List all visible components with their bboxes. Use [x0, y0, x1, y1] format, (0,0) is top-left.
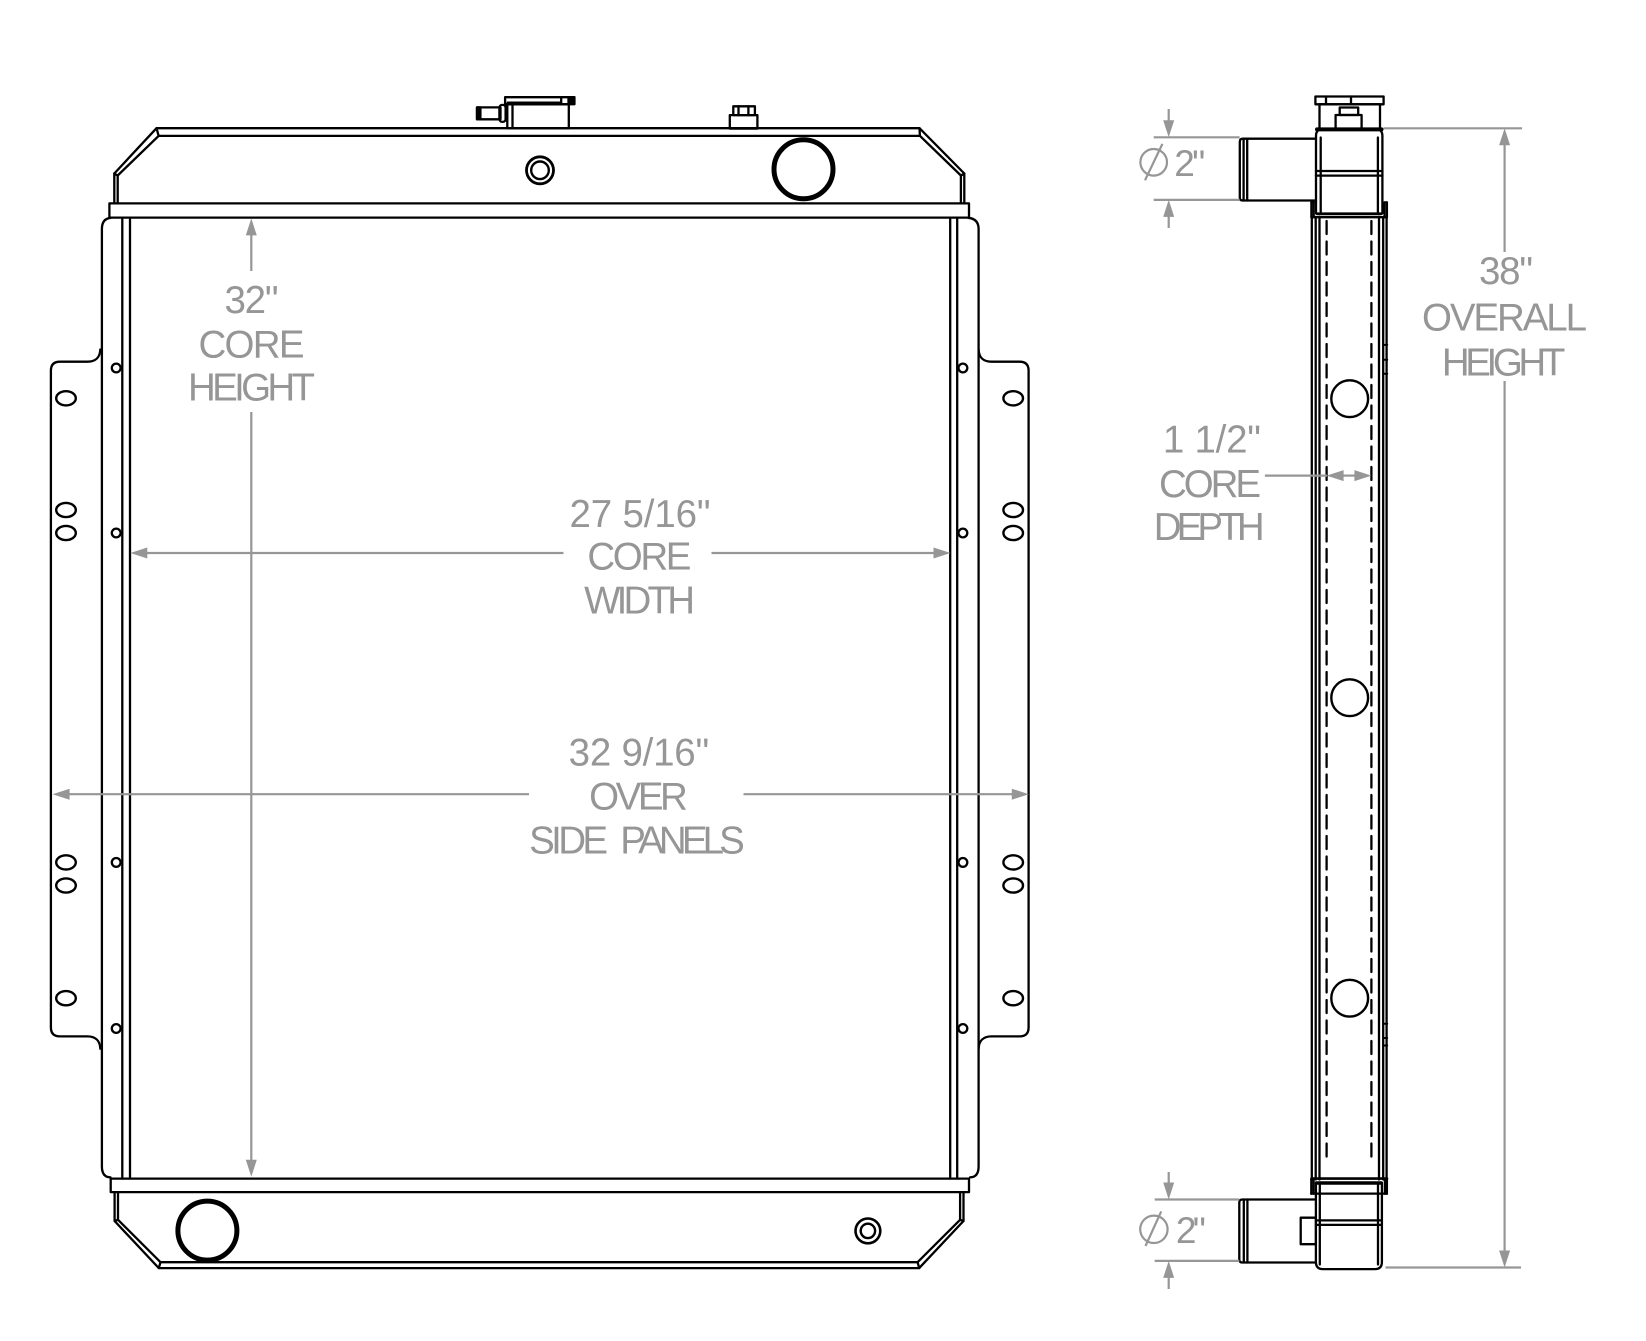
svg-text:38": 38": [1479, 250, 1533, 293]
svg-text:HEIGHT: HEIGHT: [188, 367, 315, 410]
svg-text:1 1/2": 1 1/2": [1163, 418, 1261, 461]
svg-text:27 5/16": 27 5/16": [570, 493, 711, 536]
svg-text:2": 2": [1176, 1210, 1206, 1251]
svg-text:SIDE: SIDE: [529, 820, 608, 863]
svg-text:CORE: CORE: [587, 536, 691, 579]
svg-text:PANELS: PANELS: [620, 820, 745, 863]
svg-text:OVERALL: OVERALL: [1422, 297, 1587, 340]
svg-text:CORE: CORE: [199, 324, 305, 367]
svg-text:32 9/16": 32 9/16": [569, 732, 710, 775]
svg-text:CORE: CORE: [1159, 463, 1261, 506]
svg-text:32": 32": [225, 279, 279, 322]
svg-text:OVER: OVER: [589, 776, 688, 819]
svg-text:HEIGHT: HEIGHT: [1442, 341, 1566, 384]
svg-text:WIDTH: WIDTH: [584, 580, 695, 623]
svg-text:2": 2": [1174, 143, 1205, 184]
svg-text:DEPTH: DEPTH: [1154, 506, 1265, 549]
